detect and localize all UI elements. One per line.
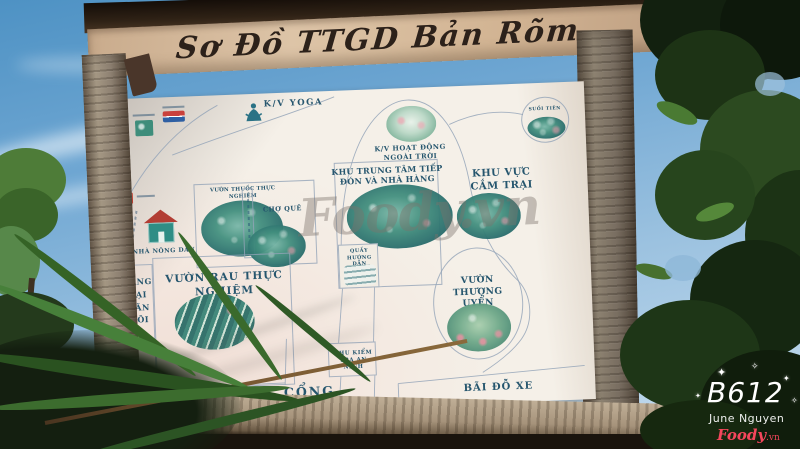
farmer-house-icon — [142, 209, 179, 246]
foody-watermark: Foody.vn — [297, 176, 542, 250]
legend-stamp-green — [135, 120, 154, 137]
corner-watermark: ✦ ✧ ✦ ✧ ✦ B612 June Nguyen Foody.vn — [695, 368, 800, 448]
star-icon: ✧ — [791, 396, 798, 405]
author-credit: June Nguyen — [709, 412, 784, 425]
foody-brand-suffix: .vn — [766, 433, 780, 443]
sky-gap — [755, 72, 785, 96]
star-icon: ✦ — [783, 374, 790, 383]
info-desk-photo — [344, 264, 377, 285]
b612-logo: B612 — [707, 376, 784, 409]
star-icon: ✧ — [751, 362, 759, 372]
photo-of-map-signboard: Sơ Đồ TTGD Bản Rõm — [0, 0, 800, 449]
legend-logo — [163, 111, 185, 123]
sky-gap — [665, 255, 701, 281]
info-desk-box: QUẦY HƯỚNG DẪN — [338, 243, 380, 289]
star-icon: ✦ — [695, 392, 701, 400]
foody-brand: Foody.vn — [717, 425, 780, 444]
foody-brand-name: Foody — [717, 426, 766, 444]
foliage-right — [655, 150, 755, 240]
